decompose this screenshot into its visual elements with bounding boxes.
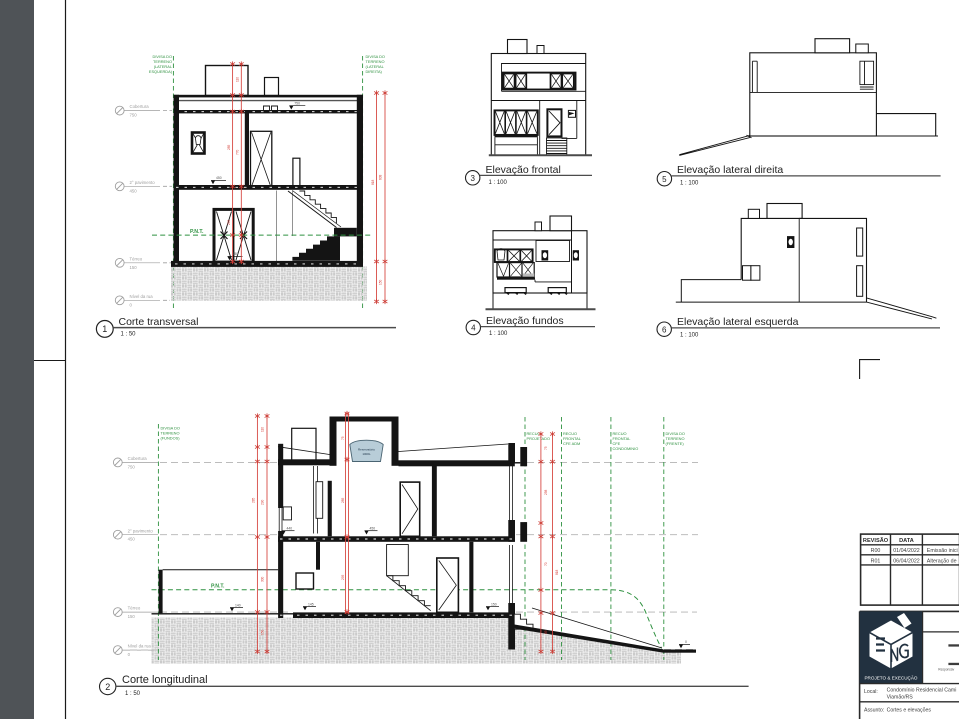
svg-text:DIVISA DOTERRENO(FUNDOS): DIVISA DOTERRENO(FUNDOS) [161,426,181,441]
svg-text:Nível da rua: Nível da rua [128,644,152,649]
svg-text:85: 85 [544,630,548,634]
svg-text:P.N.T.: P.N.T. [211,584,225,590]
svg-text:2° pavimento: 2° pavimento [128,528,154,533]
svg-text:Condomínio Residencial Cami: Condomínio Residencial Cami [887,687,957,693]
svg-text:0: 0 [685,640,687,644]
svg-text:295: 295 [227,219,231,225]
svg-text:258: 258 [544,489,548,495]
svg-text:Nível da rua: Nível da rua [130,294,154,299]
svg-text:1 : 100: 1 : 100 [489,180,508,186]
svg-text:450: 450 [128,537,136,542]
svg-text:P.N.T.: P.N.T. [190,229,204,235]
svg-text:DIVISA DOTERRENO(FRENTE): DIVISA DOTERRENO(FRENTE) [666,431,685,446]
svg-text:450: 450 [216,176,222,180]
svg-text:Alteração de: Alteração de [927,558,957,564]
svg-text:750: 750 [128,464,136,469]
svg-text:Elevação frontal: Elevação frontal [486,164,561,176]
svg-text:150: 150 [130,265,138,270]
svg-text:750: 750 [294,102,300,106]
svg-text:PROJETO & EXECUÇÃO: PROJETO & EXECUÇÃO [864,675,917,681]
svg-text:Emissão inici: Emissão inici [927,548,958,554]
svg-text:1 : 50: 1 : 50 [125,691,141,697]
svg-text:750: 750 [130,113,138,118]
svg-text:6: 6 [662,325,667,334]
svg-text:Cobertura: Cobertura [130,104,150,109]
svg-text:REVISÃO: REVISÃO [863,537,889,544]
svg-text:295: 295 [341,574,345,580]
svg-text:Térreo: Térreo [128,606,141,611]
svg-text:1 : 100: 1 : 100 [680,332,699,338]
svg-text:Assunto:: Assunto: [864,708,884,714]
svg-text:818: 818 [371,179,375,185]
svg-text:3: 3 [470,174,475,183]
svg-text:75: 75 [341,436,345,440]
svg-text:285: 285 [251,497,255,503]
svg-text:Elevação fundos: Elevação fundos [486,315,564,327]
svg-text:Elevação lateral esquerda: Elevação lateral esquerda [677,316,799,328]
svg-text:70: 70 [544,562,548,566]
svg-text:150: 150 [233,252,239,256]
svg-text:285: 285 [341,497,345,503]
svg-text:818: 818 [555,569,559,575]
svg-text:75: 75 [544,446,548,450]
svg-text:5: 5 [662,175,667,184]
svg-text:145: 145 [308,602,314,606]
svg-text:Responsáv: Responsáv [938,667,954,671]
svg-text:770: 770 [236,149,240,155]
svg-text:110: 110 [236,77,240,82]
svg-text:300: 300 [261,576,265,582]
svg-text:450: 450 [370,527,376,531]
svg-text:440: 440 [287,527,293,531]
svg-text:608: 608 [379,174,383,180]
svg-text:140: 140 [235,603,241,607]
svg-text:290: 290 [261,499,265,505]
svg-text:2: 2 [105,682,110,692]
svg-text:DATA: DATA [899,538,914,544]
svg-text:1 : 50: 1 : 50 [121,332,137,338]
svg-text:Elevação lateral direita: Elevação lateral direita [677,164,783,176]
svg-text:1000L: 1000L [362,452,371,456]
svg-text:150: 150 [491,602,497,606]
svg-text:150: 150 [128,614,136,619]
svg-text:150: 150 [261,629,265,635]
svg-text:2° pavimento: 2° pavimento [130,180,156,185]
svg-text:Cobertura: Cobertura [128,456,148,461]
svg-text:1 : 100: 1 : 100 [680,180,699,186]
svg-text:01/04/2022: 01/04/2022 [893,548,920,554]
svg-text:Cortes e elevações: Cortes e elevações [887,708,932,714]
svg-text:1 : 100: 1 : 100 [489,331,508,337]
svg-text:Viamão/RS: Viamão/RS [887,695,914,701]
svg-text:Corte transversal: Corte transversal [119,316,199,328]
svg-text:450: 450 [130,188,138,193]
svg-text:Local:: Local: [864,689,878,695]
svg-text:110: 110 [261,427,265,432]
svg-text:R01: R01 [871,558,881,564]
svg-text:285: 285 [227,144,231,150]
svg-text:R00: R00 [871,548,881,554]
svg-text:Corte longitudinal: Corte longitudinal [122,674,208,686]
svg-text:06/04/2022: 06/04/2022 [893,558,920,564]
svg-text:1: 1 [102,324,107,334]
svg-text:Reservatório: Reservatório [358,448,375,452]
svg-text:150: 150 [379,279,383,285]
svg-text:4: 4 [471,324,476,333]
svg-text:Térreo: Térreo [130,256,143,261]
